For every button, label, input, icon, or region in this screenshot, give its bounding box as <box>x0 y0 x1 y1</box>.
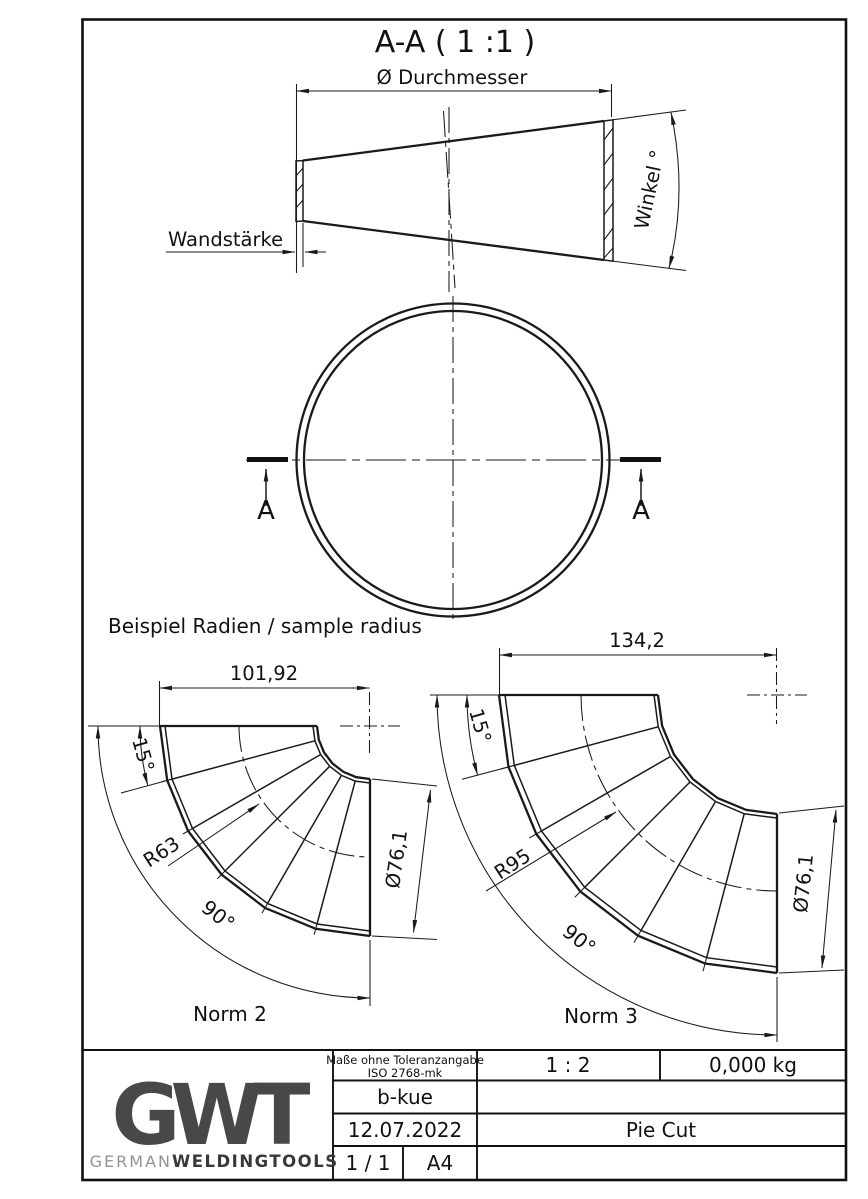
drawing-date: 12.07.2022 <box>348 1118 463 1142</box>
drawing-sheet: A-A ( 1 :1 ) Ø Durchmesser Winkel ° Wand… <box>0 0 868 1199</box>
brand-name-regular: GERMAN <box>90 1152 172 1171</box>
norm2-elbow-figure: 101,92 15° R63 90° <box>88 662 437 1026</box>
sheet-number: 1 / 1 <box>346 1151 391 1175</box>
norm2-bend-angle: 90° <box>197 895 240 936</box>
gwt-logo-acronym: GWT <box>112 1066 311 1164</box>
norm3-length-dimension: 134,2 <box>609 629 665 652</box>
norm3-elbow-figure: 134,2 15° R95 90° <box>430 629 844 1042</box>
norm2-bend-radius: R63 <box>139 832 184 872</box>
drawing-scale: 1 : 2 <box>546 1053 591 1077</box>
author-field: b-kue <box>377 1085 433 1109</box>
pipe-plan-view: A A <box>246 296 661 624</box>
section-letter-right: A <box>632 496 650 526</box>
brand-name-bold: WELDINGTOOLS <box>172 1152 339 1171</box>
paper-format: A4 <box>427 1151 453 1175</box>
tolerance-note-line1: Maße ohne Toleranzangabe <box>326 1053 484 1067</box>
norm3-bend-angle: 90° <box>558 919 601 960</box>
norm3-diameter: Ø76,1 <box>789 853 818 914</box>
norm3-segment-seams <box>514 727 744 958</box>
angle-dimension-label: Winkel ° <box>630 148 669 232</box>
cone-big-end-wall <box>604 120 613 261</box>
tolerance-note-line2: ISO 2768-mk <box>368 1066 443 1080</box>
company-logo: GWT GERMAN WELDINGTOOLS <box>90 1066 339 1171</box>
section-view-title: A-A ( 1 :1 ) <box>375 25 535 60</box>
part-weight: 0,000 kg <box>709 1053 797 1077</box>
diameter-dimension-label: Ø Durchmesser <box>377 66 529 89</box>
norm2-caption: Norm 2 <box>193 1002 267 1026</box>
cone-section-view: Ø Durchmesser Winkel ° Wandstärke <box>166 66 686 292</box>
cone-bottom-edge <box>303 221 604 260</box>
title-block: GWT GERMAN WELDINGTOOLS Maße ohne Tolera… <box>83 1050 847 1180</box>
part-title: Pie Cut <box>626 1118 696 1142</box>
angle-dimension-arc <box>669 112 679 268</box>
norm2-length-dimension: 101,92 <box>230 662 298 685</box>
norm2-segment-angle: 15° <box>127 735 159 775</box>
samples-heading: Beispiel Radien / sample radius <box>108 614 422 638</box>
norm3-segment-angle: 15° <box>464 706 496 746</box>
norm2-diameter: Ø76,1 <box>381 828 412 889</box>
drawing-canvas: A-A ( 1 :1 ) Ø Durchmesser Winkel ° Wand… <box>0 0 868 1199</box>
hatching-small-wall <box>296 168 303 208</box>
norm2-segment-seams <box>172 741 355 924</box>
hatching-big-wall <box>604 128 613 258</box>
norm3-bend-radius: R95 <box>490 844 535 884</box>
wall-thickness-label: Wandstärke <box>168 228 283 251</box>
section-letter-left: A <box>257 496 275 526</box>
norm3-caption: Norm 3 <box>564 1004 638 1028</box>
cone-top-edge <box>303 121 604 161</box>
